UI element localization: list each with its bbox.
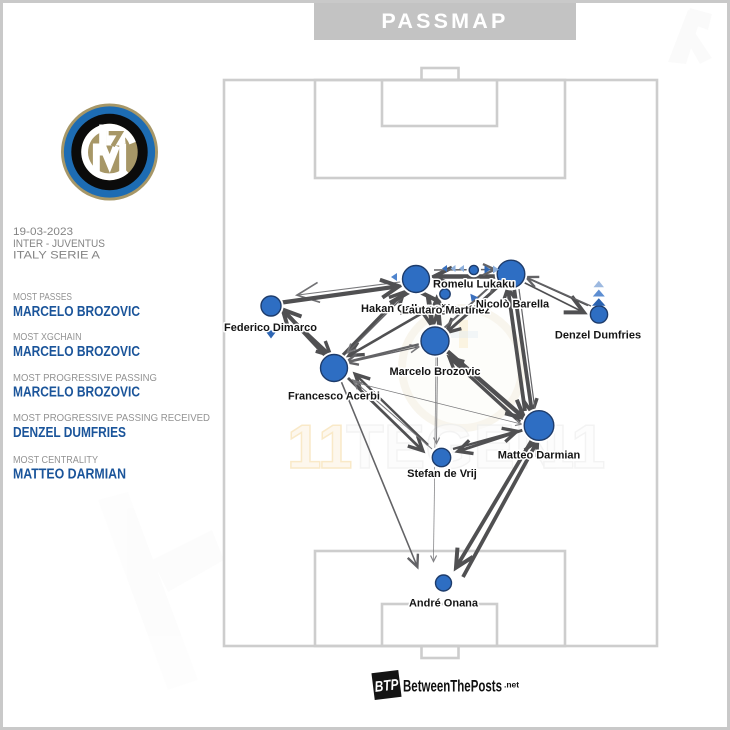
svg-text:MATTEO DARMIAN: MATTEO DARMIAN	[13, 467, 126, 483]
svg-text:19-03-2023: 19-03-2023	[13, 226, 73, 238]
svg-text:André Onana: André Onana	[409, 598, 479, 610]
svg-text:MOST XGCHAIN: MOST XGCHAIN	[13, 331, 82, 343]
svg-text:MARCELO BROZOVIC: MARCELO BROZOVIC	[13, 385, 140, 401]
svg-text:MOST PROGRESSIVE PASSING RECEI: MOST PROGRESSIVE PASSING RECEIVED	[13, 412, 210, 424]
svg-text:Marcelo Brozovic: Marcelo Brozovic	[389, 366, 480, 378]
svg-text:Romelu Lukaku: Romelu Lukaku	[433, 279, 515, 291]
svg-text:MARCELO BROZOVIC: MARCELO BROZOVIC	[13, 304, 140, 320]
svg-text:Matteo Darmian: Matteo Darmian	[498, 450, 581, 462]
svg-text:Federico Dimarco: Federico Dimarco	[224, 322, 317, 334]
svg-text:BetweenThePosts: BetweenThePosts	[403, 677, 502, 696]
svg-text:Francesco Acerbi: Francesco Acerbi	[288, 391, 380, 403]
svg-text:MARCELO BROZOVIC: MARCELO BROZOVIC	[13, 344, 140, 360]
svg-text:MOST PROGRESSIVE PASSING: MOST PROGRESSIVE PASSING	[13, 372, 157, 384]
svg-text:.net: .net	[504, 680, 519, 690]
svg-text:ITALY SERIE A: ITALY SERIE A	[13, 250, 101, 262]
svg-text:BTP: BTP	[374, 676, 401, 696]
svg-text:DENZEL DUMFRIES: DENZEL DUMFRIES	[13, 425, 126, 441]
svg-text:11: 11	[287, 413, 353, 482]
svg-text:INTER - JUVENTUS: INTER - JUVENTUS	[13, 238, 105, 250]
svg-text:Stefan de Vrij: Stefan de Vrij	[407, 468, 477, 480]
svg-text:MOST CENTRALITY: MOST CENTRALITY	[13, 454, 98, 466]
svg-text:Denzel Dumfries: Denzel Dumfries	[555, 330, 641, 342]
svg-text:MOST PASSES: MOST PASSES	[13, 291, 72, 303]
svg-text:Nicolò Barella: Nicolò Barella	[476, 299, 550, 311]
